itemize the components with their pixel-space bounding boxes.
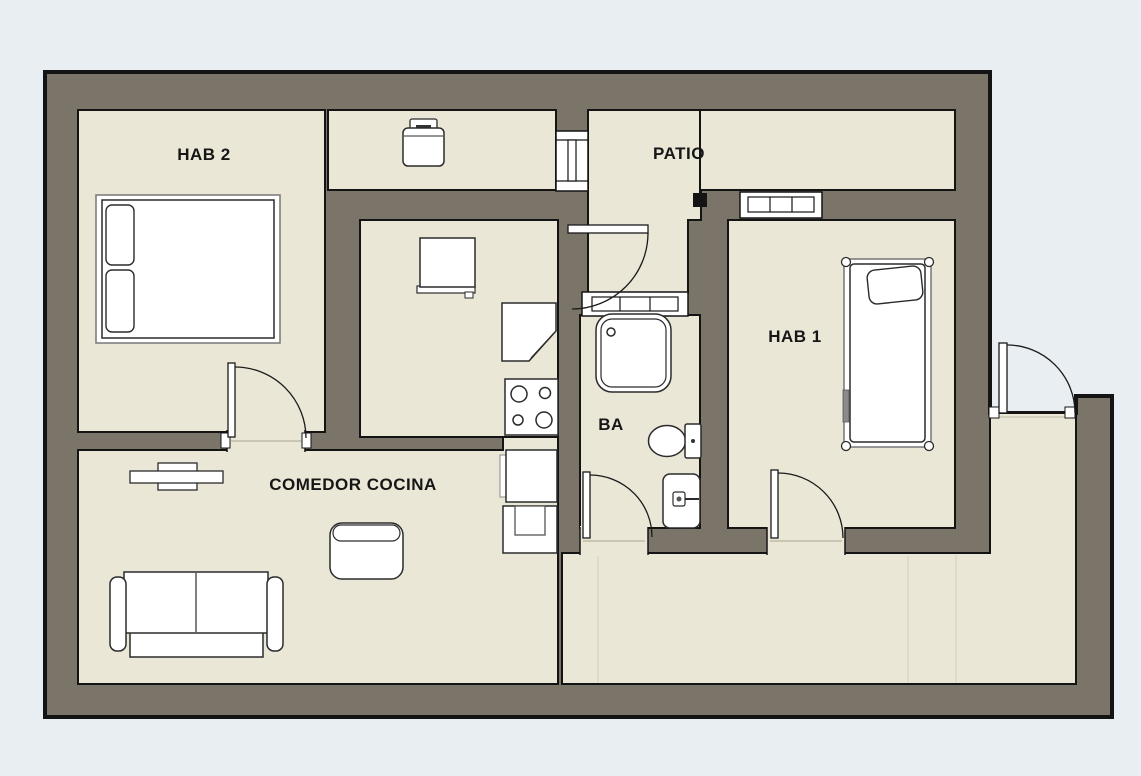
- pillow: [106, 270, 134, 332]
- pillow: [106, 205, 134, 265]
- floor-plan-svg: [0, 0, 1141, 776]
- stove: [505, 379, 558, 435]
- hab2-door-gap: [227, 430, 305, 452]
- window-patio-hab1: [740, 192, 822, 218]
- window-vestibule-ba: [582, 292, 688, 316]
- sofa: [110, 572, 283, 657]
- shower: [596, 314, 671, 392]
- sofa-armrest: [110, 577, 126, 651]
- shower-drain: [607, 328, 615, 336]
- room-label-patio: PATIO: [653, 144, 705, 164]
- floor-plan: HAB 2 PATIO HAB 1 BA COMEDOR COCINA: [0, 0, 1141, 776]
- pillow: [866, 265, 923, 304]
- armchair: [330, 523, 403, 579]
- room-label-comedor: COMEDOR COCINA: [269, 475, 437, 495]
- toilet: [649, 424, 702, 458]
- single-bed: [842, 258, 934, 451]
- fridge-counter: [417, 238, 475, 298]
- room-label-hab2: HAB 2: [177, 145, 231, 165]
- room-label-hab1: HAB 1: [768, 327, 822, 347]
- hab1-door-gap: [767, 526, 845, 555]
- room-label-ba: BA: [598, 415, 624, 435]
- window-laundry-patio: [556, 131, 588, 191]
- kitchen-counter: [500, 450, 557, 502]
- double-bed: [96, 195, 280, 343]
- sofa-armrest: [267, 577, 283, 651]
- bathroom-sink: [663, 474, 700, 528]
- kitchen-sink: [503, 506, 557, 553]
